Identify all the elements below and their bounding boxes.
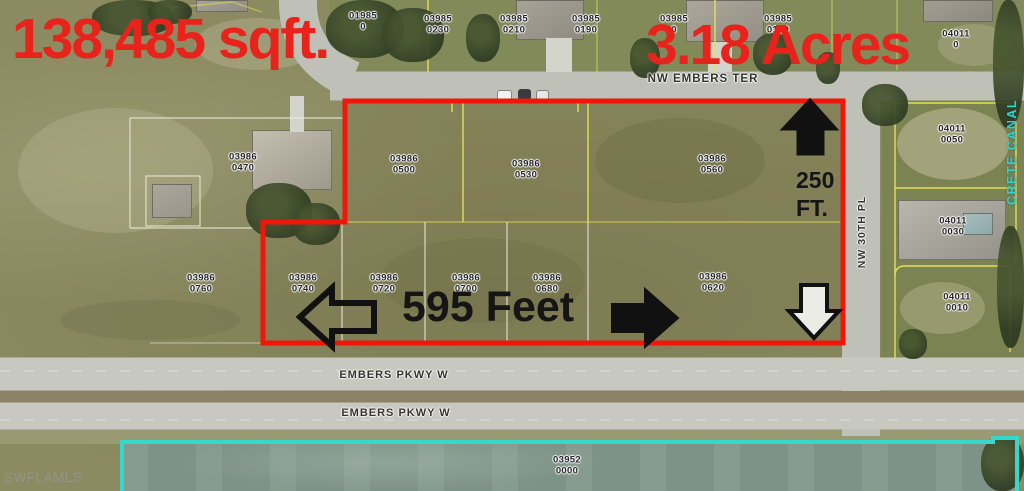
- arrow-right-icon: [612, 289, 678, 347]
- arrow-down-icon: [789, 285, 839, 338]
- arrow-left-icon: [300, 288, 374, 346]
- watermark: SWFLAMLS: [4, 470, 82, 485]
- property-boundary: [263, 101, 843, 343]
- annotation-overlay: [0, 0, 1024, 491]
- aerial-parcel-map: 01985 003985 023003985 021003985 0190039…: [0, 0, 1024, 491]
- arrow-up-icon: [783, 100, 836, 154]
- canal-boundary: [122, 438, 1017, 491]
